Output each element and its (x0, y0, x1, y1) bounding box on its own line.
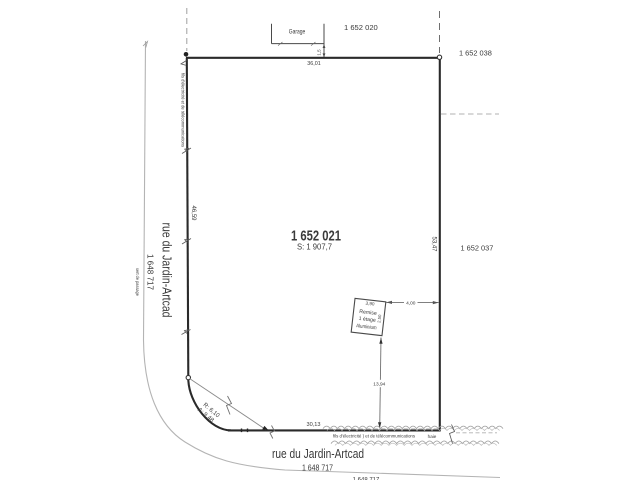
svg-text:1 648 717: 1 648 717 (302, 464, 333, 473)
svg-text:1 652 037: 1 652 037 (461, 244, 494, 253)
svg-text:4,00: 4,00 (406, 300, 416, 306)
svg-text:46,59: 46,59 (190, 205, 196, 221)
svg-text:3,90: 3,90 (365, 301, 375, 307)
svg-text:2,50: 2,50 (376, 314, 382, 323)
svg-text:sert de passage: sert de passage (135, 268, 140, 296)
svg-text:1 652 038: 1 652 038 (459, 49, 492, 58)
svg-text:53,47: 53,47 (431, 236, 437, 252)
svg-text:36,01: 36,01 (307, 61, 321, 67)
svg-text:rue du Jardin-Artcad: rue du Jardin-Artcad (272, 446, 364, 461)
svg-text:1 648 717: 1 648 717 (146, 254, 155, 291)
svg-text:fils d'électricité et de téléc: fils d'électricité et de télécommunicati… (181, 73, 186, 148)
svg-text:S: 1 907,7: S: 1 907,7 (297, 243, 333, 252)
svg-text:Garage: Garage (289, 29, 306, 36)
svg-text:haie: haie (428, 434, 437, 439)
svg-text:1,5: 1,5 (317, 49, 322, 56)
svg-text:rue du Jardin-Artcad: rue du Jardin-Artcad (160, 223, 175, 318)
svg-text:1 652 020: 1 652 020 (344, 23, 378, 32)
svg-text:13,94: 13,94 (373, 382, 385, 388)
svg-text:fils d'électricité ) et de tél: fils d'électricité ) et de télécommunica… (333, 434, 416, 439)
svg-text:30,13: 30,13 (307, 422, 321, 428)
